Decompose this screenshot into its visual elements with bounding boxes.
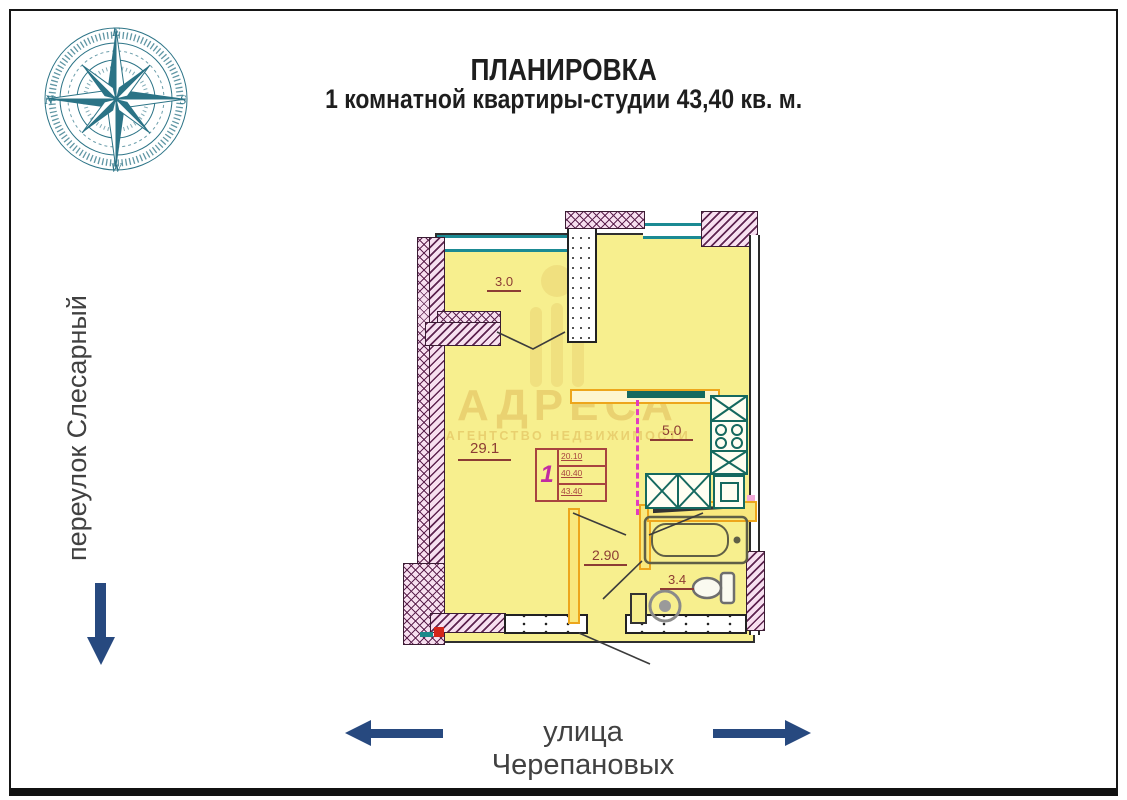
street-label-left: переулок Слесарный [62,278,93,578]
entrance-door [579,633,650,664]
area-label-loggia: 3.0 [487,275,521,292]
down-arrow-shaft [95,583,106,638]
stamp-living-area: 20.10 [559,450,605,467]
compass-letter-top: E [111,24,120,39]
stamp-total-area: 43.40 [559,485,605,500]
left-arrow-shaft [371,729,443,738]
stamp-area: 40.40 [559,467,605,484]
bathroom-door [603,561,642,599]
apartment-number: 1 [537,450,557,500]
loggia-door [497,332,565,349]
floorplan-page: E S W N ПЛАНИРОВКА 1 комнатной квартиры-… [0,0,1127,800]
area-label-living: 29.1 [458,441,511,461]
hall-door-a [573,513,626,535]
page-title: ПЛАНИРОВКА [0,52,1127,88]
left-arrow-icon [345,720,371,746]
right-arrow-icon [785,720,811,746]
area-label-kitchen: 5.0 [650,423,693,441]
street-label-bottom: улица Черепановых [448,716,718,782]
right-arrow-shaft [713,729,785,738]
page-subtitle: 1 комнатной квартиры-студии 43,40 кв. м. [0,84,1127,115]
stamp-areas: 20.10 40.40 43.40 [557,450,605,500]
down-arrow-icon [87,637,115,665]
area-label-bathroom: 3.4 [660,573,694,590]
area-label-hallway: 2.90 [584,548,627,566]
hall-door-b [649,513,703,535]
apartment-stamp: 1 20.10 40.40 43.40 [535,448,607,502]
compass-letter-bottom: W [111,160,123,175]
floorplan: АДРЕСА АГЕНТСТВО НЕДВИЖИМОСТИ [402,205,774,683]
